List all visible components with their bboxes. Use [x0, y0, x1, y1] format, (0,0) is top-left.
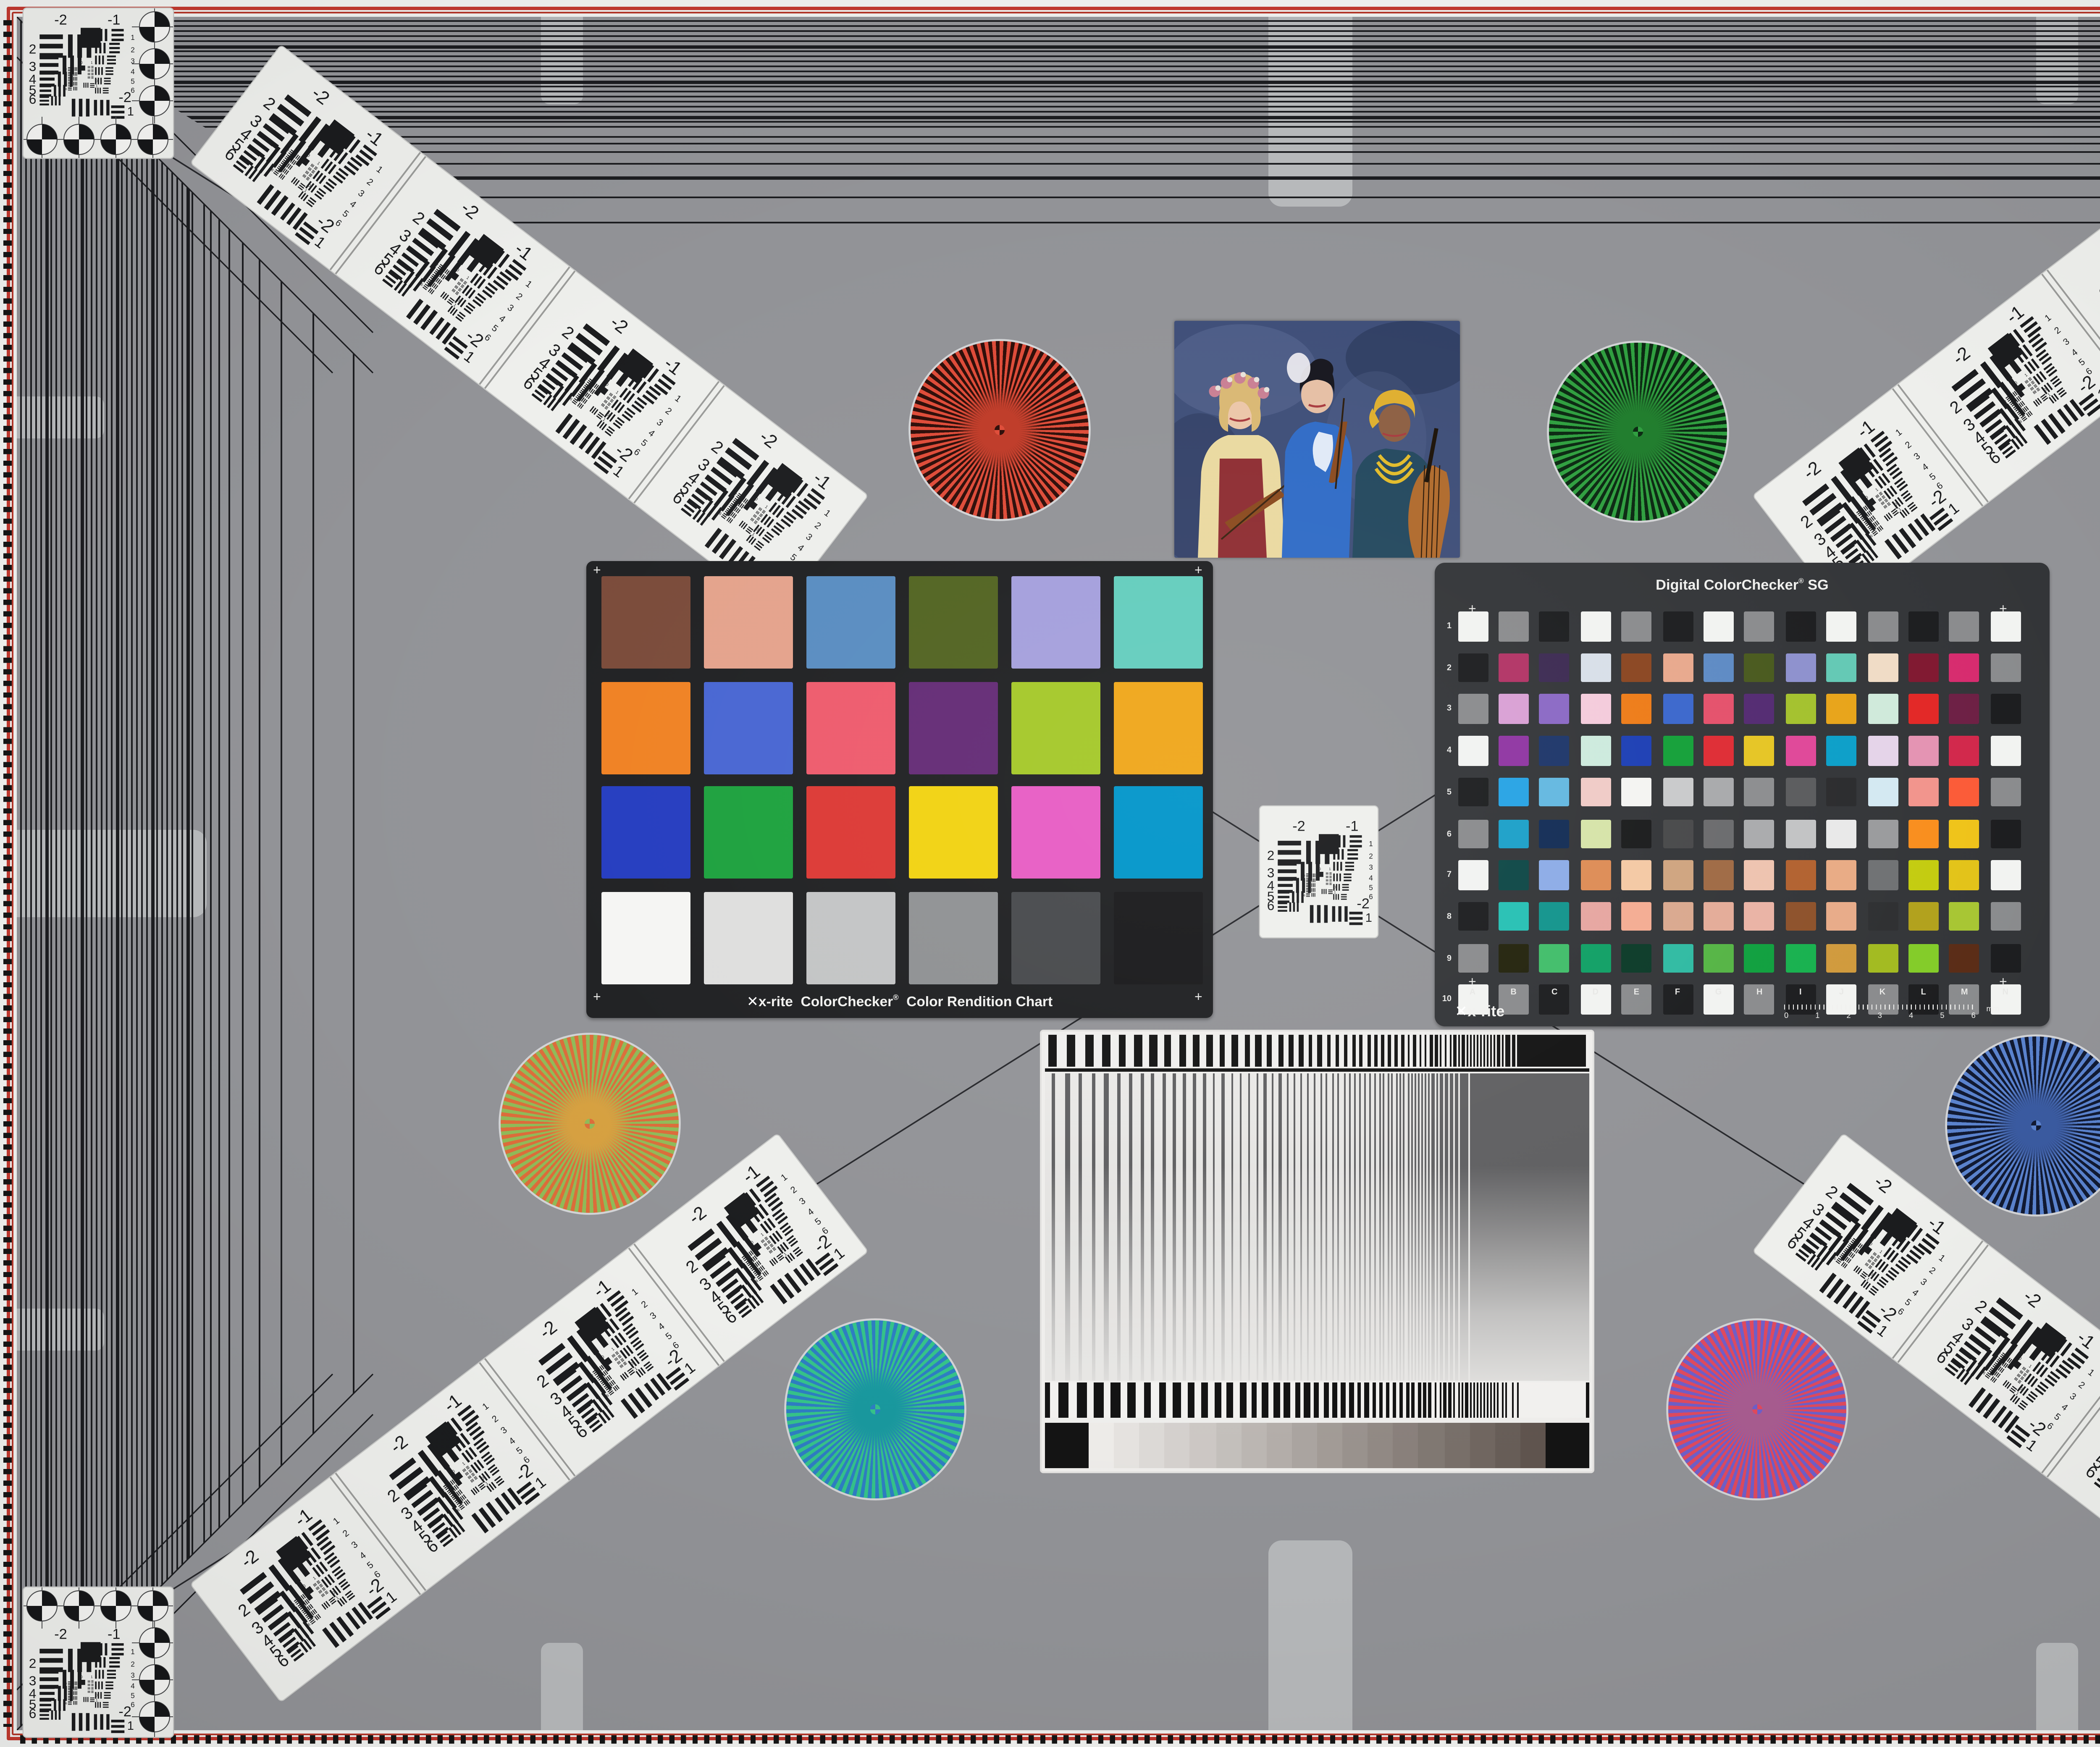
- svg-text:2: 2: [260, 93, 279, 114]
- svg-text:5: 5: [664, 1330, 674, 1342]
- sg-patch: [1704, 777, 1734, 807]
- star-center-marker: [995, 425, 1005, 435]
- svg-text:2: 2: [813, 520, 823, 531]
- wedge-step: [1190, 1423, 1216, 1468]
- sg-patch: [1785, 611, 1816, 641]
- svg-text:5: 5: [490, 323, 500, 334]
- svg-text:-2: -2: [511, 1460, 537, 1486]
- svg-text:3: 3: [349, 1539, 360, 1550]
- separator-line: [1045, 1068, 1589, 1072]
- sg-patch: [1457, 860, 1488, 890]
- sg-patch: [1704, 695, 1734, 724]
- digital-colorchecker-sg: Digital ColorChecker® SG ✕x-rite 0123456…: [1435, 563, 2050, 1026]
- sg-patch: [1621, 695, 1651, 724]
- sg-patch: [1744, 819, 1774, 848]
- xrite-logo-icon: ✕: [747, 993, 759, 1010]
- sg-row-label: 3: [1438, 705, 1452, 715]
- svg-text:1: 1: [375, 164, 385, 175]
- cc-patch: [1114, 891, 1202, 984]
- svg-text:1: 1: [1937, 1252, 1948, 1264]
- sg-patch: [1744, 695, 1774, 724]
- ruler-number: 0: [1784, 1012, 1788, 1020]
- svg-text:4: 4: [1910, 1287, 1921, 1298]
- svg-text:2: 2: [2052, 325, 2063, 336]
- sg-patch: [1499, 736, 1529, 765]
- svg-text:1: 1: [335, 1595, 340, 1600]
- ruler-number: 4: [1909, 1012, 1913, 1020]
- svg-text:2: 2: [1304, 874, 1305, 878]
- sg-patch: [1785, 695, 1816, 724]
- svg-text:1: 1: [1365, 911, 1372, 925]
- sg-patch: [1539, 736, 1570, 765]
- svg-text:3: 3: [797, 1195, 808, 1207]
- sg-patch: [1908, 860, 1939, 890]
- gray-step-wedge: [1045, 1423, 1589, 1468]
- svg-text:2: 2: [2095, 282, 2100, 303]
- sg-patch: [1826, 860, 1856, 890]
- chirp-bars-bottom: [1045, 1382, 1589, 1418]
- svg-text:1: 1: [2042, 312, 2053, 323]
- svg-text:1: 1: [760, 1232, 765, 1237]
- sg-patch: [1580, 653, 1611, 682]
- wedge-step: [1444, 1423, 1470, 1468]
- sg-patch: [1990, 943, 2021, 973]
- svg-text:3: 3: [499, 1424, 509, 1436]
- svg-text:2: 2: [2076, 1379, 2087, 1390]
- svg-text:4: 4: [507, 1435, 517, 1446]
- star-teal: [786, 1320, 964, 1498]
- sg-patch: [1704, 943, 1734, 973]
- svg-text:6: 6: [1267, 898, 1275, 913]
- svg-text:4: 4: [1304, 884, 1305, 887]
- sg-patch: [1785, 777, 1816, 807]
- sg-mm-ruler: 0123456 mm: [1784, 1005, 1999, 1025]
- sg-patch: [1704, 902, 1734, 931]
- svg-text:3: 3: [648, 1310, 658, 1321]
- svg-text:4: 4: [646, 428, 657, 439]
- svg-text:4: 4: [348, 198, 358, 210]
- sg-patch: [1621, 943, 1651, 973]
- cc-patch: [806, 891, 895, 984]
- sg-patch: [1499, 819, 1529, 848]
- wedge-step: [1393, 1423, 1419, 1468]
- svg-text:1: 1: [1898, 507, 1902, 512]
- svg-text:4: 4: [357, 1550, 368, 1561]
- sg-patch: [1744, 943, 1774, 973]
- sg-patch: [1908, 902, 1939, 931]
- svg-text:1: 1: [1874, 487, 1879, 492]
- sg-row-label: 9: [1438, 953, 1452, 963]
- wedge-step: [1089, 1423, 1115, 1468]
- sg-patch: [1867, 695, 1898, 724]
- ruler-ticks: [1784, 1005, 1976, 1010]
- sg-patch: [1539, 695, 1570, 724]
- svg-text:-2: -2: [386, 1431, 412, 1458]
- svg-text:3: 3: [505, 302, 516, 313]
- sg-patch: [1744, 902, 1774, 931]
- sg-patch: [1457, 819, 1488, 848]
- sg-patch: [1580, 611, 1611, 641]
- svg-text:-2: -2: [1870, 1171, 1896, 1198]
- svg-text:-2: -2: [535, 1317, 561, 1343]
- star-green: [1549, 343, 1727, 521]
- svg-text:1: 1: [2086, 1367, 2097, 1378]
- perforation-ticks-bottom: [20, 1735, 2100, 1743]
- sg-patch: [1990, 653, 2021, 682]
- sg-patch: [1662, 695, 1693, 724]
- svg-text:1: 1: [2015, 1391, 2019, 1396]
- sg-patch: [1621, 819, 1651, 848]
- sg-patch: [1662, 736, 1693, 765]
- cc-patch: [1011, 681, 1100, 774]
- svg-text:1: 1: [312, 233, 329, 252]
- svg-text:3: 3: [356, 188, 367, 199]
- svg-text:2: 2: [490, 1413, 500, 1424]
- sg-patch: [1744, 777, 1774, 807]
- sg-col-label: K: [1867, 988, 1898, 998]
- svg-text:1: 1: [452, 303, 457, 308]
- svg-text:2: 2: [341, 1528, 351, 1539]
- corner-cross-mark: +: [1999, 976, 2007, 989]
- wedge-step: [1139, 1423, 1165, 1468]
- svg-text:1: 1: [1329, 867, 1331, 871]
- cc-patch: [1011, 891, 1100, 984]
- cc-patch: [909, 786, 997, 879]
- sg-patch: [1499, 611, 1529, 641]
- usaf-resolution-chart: -2-123456123456-21012345601: [1263, 816, 1374, 927]
- svg-text:4: 4: [497, 313, 508, 324]
- sg-patch: [1867, 777, 1898, 807]
- cc-patch: [601, 891, 690, 984]
- svg-text:-2: -2: [2098, 228, 2100, 254]
- svg-text:2: 2: [1971, 1296, 1991, 1317]
- sg-patch: [1867, 819, 1898, 848]
- sg-patch: [1949, 819, 1979, 848]
- sg-patch: [1949, 695, 1979, 724]
- svg-text:1: 1: [465, 275, 470, 281]
- wedge-step: [1520, 1423, 1546, 1468]
- sg-patch: [1908, 736, 1939, 765]
- sg-col-label: D: [1580, 988, 1611, 998]
- svg-text:1: 1: [614, 390, 619, 395]
- star-center-marker: [1633, 427, 1643, 437]
- svg-text:5: 5: [813, 1216, 823, 1227]
- svg-text:-2: -2: [606, 312, 632, 338]
- svg-text:4: 4: [1920, 461, 1930, 472]
- svg-text:6: 6: [1304, 894, 1305, 897]
- wedge-step: [1317, 1423, 1343, 1468]
- sg-patch: [1908, 611, 1939, 641]
- svg-text:1: 1: [331, 1515, 341, 1527]
- wedge-step: [1114, 1423, 1140, 1468]
- svg-text:5: 5: [365, 1559, 375, 1571]
- sg-patch: [1621, 611, 1651, 641]
- svg-text:1: 1: [601, 417, 606, 422]
- sg-patch: [1704, 736, 1734, 765]
- svg-text:1: 1: [611, 1347, 615, 1352]
- wedge-step: [1368, 1423, 1394, 1468]
- svg-text:1: 1: [822, 507, 833, 519]
- svg-text:1: 1: [779, 1172, 789, 1183]
- svg-text:4: 4: [2069, 346, 2080, 358]
- svg-text:2: 2: [1903, 439, 1914, 451]
- sg-col-label: G: [1704, 988, 1734, 998]
- chirp-bars-top: [1045, 1035, 1589, 1067]
- sg-patch: [1580, 777, 1611, 807]
- test-chart-scene: -2-123456123456-21012345601-2-1234561234…: [0, 0, 2100, 1747]
- sg-patch: [1785, 653, 1816, 682]
- cc-patch: [601, 681, 690, 774]
- sg-patch: [1457, 943, 1488, 973]
- svg-text:0: 0: [1334, 886, 1336, 889]
- svg-text:1: 1: [2023, 1436, 2040, 1455]
- sg-patch: [1990, 860, 2021, 890]
- sg-patch: [1539, 819, 1570, 848]
- sg-patch: [1949, 611, 1979, 641]
- svg-text:5: 5: [514, 1445, 525, 1456]
- svg-text:-2: -2: [457, 197, 483, 223]
- frequency-sweep-panel: [1042, 1031, 1593, 1472]
- svg-text:1: 1: [461, 347, 478, 366]
- cc-patch: [601, 786, 690, 879]
- sg-patch: [1580, 902, 1611, 931]
- svg-text:1: 1: [751, 532, 756, 537]
- sg-patch: [1908, 653, 1939, 682]
- wedge-step: [1215, 1423, 1242, 1468]
- sg-patch: [1908, 695, 1939, 724]
- svg-text:4: 4: [2060, 1401, 2070, 1413]
- svg-text:-2: -2: [362, 1574, 388, 1600]
- sg-brand: ✕x-rite: [1455, 1003, 1504, 1021]
- corner-cross-mark: +: [593, 991, 601, 1005]
- sg-patch: [1908, 819, 1939, 848]
- corner-cross-mark: +: [1468, 603, 1476, 616]
- svg-text:-2: -2: [1799, 457, 1825, 484]
- svg-text:1: 1: [764, 504, 769, 509]
- svg-text:-2: -2: [685, 1202, 710, 1228]
- sg-row-label: 4: [1438, 746, 1452, 756]
- svg-text:2: 2: [514, 291, 525, 302]
- sg-patch: [1457, 653, 1488, 682]
- sg-patch: [1949, 653, 1979, 682]
- svg-text:2: 2: [559, 322, 578, 343]
- svg-text:-2: -2: [810, 1230, 835, 1257]
- corner-cross-mark: +: [1999, 603, 2007, 616]
- svg-text:1: 1: [630, 1286, 640, 1297]
- sg-col-label: H: [1744, 988, 1774, 998]
- sg-patch: [1539, 611, 1570, 641]
- svg-text:5: 5: [639, 437, 650, 449]
- svg-text:2: 2: [365, 176, 375, 188]
- sg-col-label: F: [1662, 988, 1693, 998]
- sg-patch: [1539, 777, 1570, 807]
- svg-text:-2: -2: [308, 83, 333, 109]
- contrast-fade: [1045, 1073, 1589, 1381]
- sg-patch: [1662, 902, 1693, 931]
- svg-text:4: 4: [1369, 874, 1373, 882]
- sg-patch: [1785, 736, 1816, 765]
- sg-patch: [1662, 860, 1693, 890]
- wedge-step: [1342, 1423, 1368, 1468]
- ruler-number: 6: [1971, 1012, 1976, 1020]
- svg-text:3: 3: [1304, 879, 1305, 883]
- cc-patch: [909, 891, 997, 984]
- svg-text:2: 2: [1369, 852, 1373, 860]
- svg-text:3: 3: [655, 417, 665, 428]
- sg-patch: [1580, 695, 1611, 724]
- svg-text:5: 5: [1903, 1296, 1914, 1308]
- cc-patch: [1011, 786, 1100, 879]
- svg-text:-2: -2: [1948, 343, 1974, 369]
- corner-cross-mark: +: [1194, 564, 1202, 578]
- sg-patch: [1908, 943, 1939, 973]
- sg-patch: [1826, 777, 1856, 807]
- ruler-number: 3: [1878, 1012, 1882, 1020]
- sg-patch: [1580, 943, 1611, 973]
- svg-text:-2: -2: [1292, 818, 1305, 834]
- sg-patch: [1621, 736, 1651, 765]
- sg-col-label: I: [1785, 988, 1816, 998]
- sg-patch: [1826, 611, 1856, 641]
- sg-patch: [1662, 611, 1693, 641]
- sg-patch: [1662, 653, 1693, 682]
- colorchecker-label: ✕x-rite ColorChecker® Color Rendition Ch…: [586, 993, 1213, 1010]
- sg-patch: [1704, 819, 1734, 848]
- sg-title: Digital ColorChecker® SG: [1435, 576, 2050, 593]
- svg-text:-2: -2: [1357, 896, 1370, 912]
- cc-patch: [704, 576, 792, 669]
- musicians-photo: [1174, 321, 1460, 558]
- sg-patch: [1499, 777, 1529, 807]
- svg-text:-2: -2: [1924, 485, 1950, 512]
- ruler-unit: mm: [1986, 1005, 1999, 1013]
- wedge-step: [1292, 1423, 1318, 1468]
- screenshot-viewport: -2-123456123456-21012345601-2-1234561234…: [0, 0, 2100, 1747]
- corner-cross-mark: +: [1194, 991, 1202, 1005]
- sg-patch: [1867, 902, 1898, 931]
- cc-patch: [806, 576, 895, 669]
- svg-text:3: 3: [1919, 1276, 1929, 1288]
- sg-patch: [1580, 736, 1611, 765]
- colorchecker-classic: ✕x-rite ColorChecker® Color Rendition Ch…: [586, 561, 1213, 1018]
- sg-patch: [1990, 902, 2021, 931]
- svg-text:-2: -2: [237, 1546, 262, 1572]
- sg-patch: [1499, 902, 1529, 931]
- sg-patch: [1457, 902, 1488, 931]
- sg-col-label: J: [1826, 988, 1856, 998]
- svg-text:3: 3: [804, 531, 814, 543]
- sg-row-label: 5: [1438, 787, 1452, 797]
- svg-text:5: 5: [341, 208, 351, 219]
- cc-patch: [704, 681, 792, 774]
- sg-patch: [1662, 943, 1693, 973]
- svg-text:1: 1: [673, 393, 683, 404]
- svg-text:3: 3: [1911, 451, 1922, 462]
- sg-patch: [1457, 736, 1488, 765]
- sg-patch: [1539, 943, 1570, 973]
- sg-patch: [1990, 819, 2021, 848]
- sg-col-label: L: [1908, 988, 1939, 998]
- ruler-numbers: 0123456: [1784, 1012, 1976, 1020]
- sg-patch: [1499, 860, 1529, 890]
- sg-patch: [1785, 860, 1816, 890]
- sg-row-label: 10: [1438, 995, 1452, 1005]
- svg-text:2: 2: [409, 207, 428, 228]
- svg-text:2: 2: [788, 1184, 799, 1195]
- sg-patch: [1457, 695, 1488, 724]
- svg-text:5: 5: [2052, 1411, 2063, 1422]
- sg-patch: [1539, 653, 1570, 682]
- svg-text:1: 1: [1879, 1249, 1883, 1254]
- perforation-ticks-left: [4, 20, 12, 1727]
- sg-col-label: M: [1949, 988, 1979, 998]
- svg-text:1: 1: [485, 1481, 489, 1486]
- svg-text:-1: -1: [1346, 818, 1359, 834]
- sg-patch: [1499, 943, 1529, 973]
- wedge-step: [1241, 1423, 1267, 1468]
- svg-text:4: 4: [805, 1206, 816, 1217]
- ruler-number: 5: [1940, 1012, 1944, 1020]
- sg-patch: [1662, 777, 1693, 807]
- ruler-number: 1: [1815, 1012, 1819, 1020]
- cc-patch: [1114, 576, 1202, 669]
- wedge-step: [1266, 1423, 1292, 1468]
- svg-text:1: 1: [2024, 373, 2029, 378]
- sg-patch: [1949, 860, 1979, 890]
- sg-patch: [1704, 653, 1734, 682]
- svg-text:2: 2: [1267, 848, 1275, 863]
- wedge-step: [1419, 1423, 1445, 1468]
- wedge-step: [1470, 1423, 1496, 1468]
- sg-patch: [1621, 902, 1651, 931]
- sg-col-label: C: [1539, 988, 1570, 998]
- corner-target-panel: -2-123456123456-21012345601: [24, 1587, 173, 1737]
- svg-text:1: 1: [312, 1576, 317, 1581]
- sg-patch: [1826, 902, 1856, 931]
- sg-patch: [1949, 902, 1979, 931]
- cc-patch: [1114, 786, 1202, 879]
- sg-patch: [1867, 860, 1898, 890]
- cc-patch: [601, 576, 690, 669]
- fiducial-markers: [24, 1587, 173, 1737]
- sg-patch: [1785, 819, 1816, 848]
- sg-patch: [1826, 736, 1856, 765]
- sg-patch: [1785, 902, 1816, 931]
- corner-cross-mark: +: [593, 564, 601, 578]
- sg-patch: [1826, 819, 1856, 848]
- sg-col-label: E: [1621, 988, 1651, 998]
- svg-text:3: 3: [2068, 1390, 2078, 1402]
- svg-text:1: 1: [462, 1461, 466, 1466]
- sg-patch: [1826, 653, 1856, 682]
- center-resolution-target: -2-123456123456-21012345601: [1260, 806, 1378, 937]
- sg-patch: [1580, 860, 1611, 890]
- sg-row-label: 7: [1438, 871, 1452, 881]
- sg-patch: [1744, 611, 1774, 641]
- svg-text:1: 1: [634, 1367, 638, 1372]
- sg-patch: [1744, 860, 1774, 890]
- sg-patch: [1949, 736, 1979, 765]
- svg-text:3: 3: [2061, 336, 2071, 347]
- sg-patch: [1499, 695, 1529, 724]
- sg-patch: [1867, 736, 1898, 765]
- svg-text:1: 1: [1334, 890, 1336, 894]
- sg-patch: [1499, 653, 1529, 682]
- sg-patch: [1539, 860, 1570, 890]
- sg-patch: [1704, 860, 1734, 890]
- sg-patch: [1580, 819, 1611, 848]
- svg-text:1: 1: [1893, 427, 1904, 438]
